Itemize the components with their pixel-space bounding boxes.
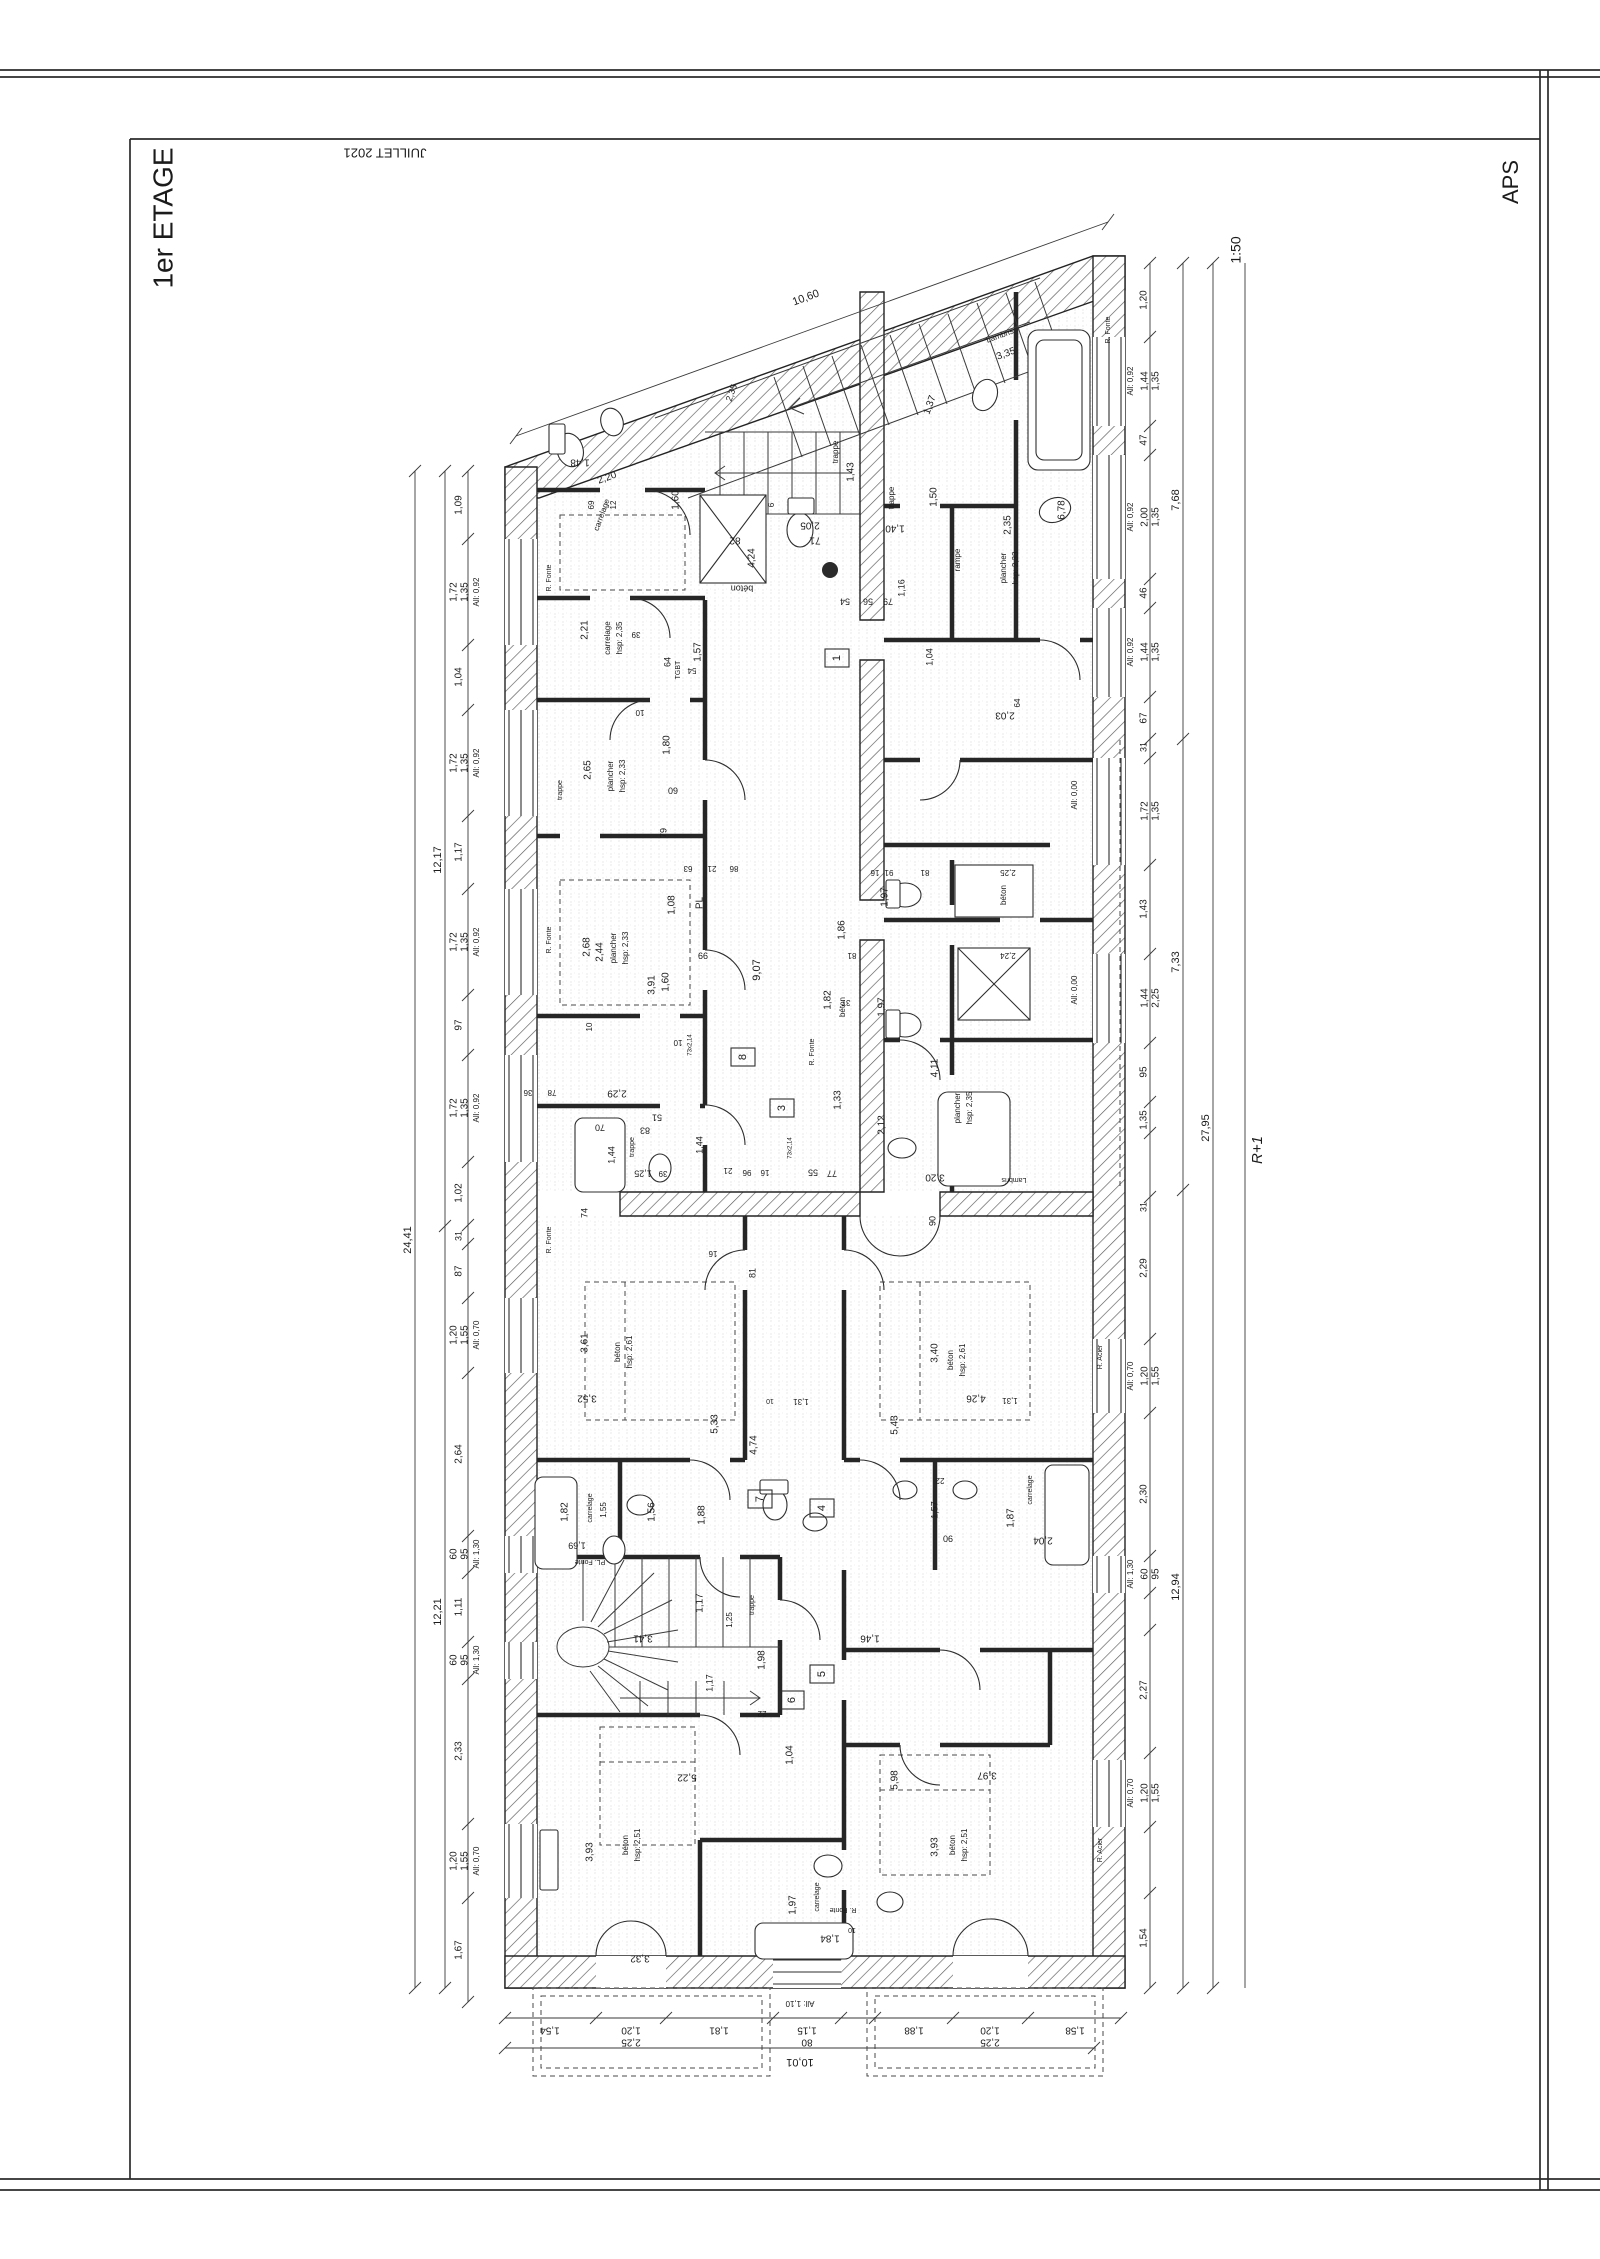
dim-label: 54: [840, 597, 850, 607]
room-label: R. Fonte: [546, 1226, 553, 1253]
dim-label: 1,82: [823, 990, 834, 1010]
dim-label: 2,29: [607, 1087, 627, 1098]
dim-label: 2,04: [1033, 1534, 1053, 1545]
dim-label: 60: [449, 1548, 460, 1560]
dim-label: 10: [673, 1038, 682, 1047]
detail-rect: [533, 1988, 770, 2076]
dim-label: 60: [1140, 1568, 1151, 1580]
room-label: All: 1,30: [1126, 1559, 1135, 1588]
dim-label: 1,44: [1140, 988, 1151, 1008]
room-label: carrelage: [603, 621, 612, 655]
dim-label: 1,80: [662, 735, 673, 755]
date-label: JUILLET 2021: [344, 146, 427, 161]
dim-label: 1,84: [820, 1932, 840, 1943]
dim-label: 31: [1138, 1202, 1148, 1212]
dim-label: 83: [640, 1126, 650, 1136]
room-label: All: 0,92: [1126, 502, 1135, 531]
detail-rect: [540, 1830, 558, 1890]
fixture: [953, 1481, 977, 1499]
dim-label: 51: [652, 1113, 662, 1123]
dim-label: 2,24: [1000, 951, 1016, 960]
room-label: All: 0,92: [472, 577, 481, 606]
room-label: All: 1,30: [472, 1539, 481, 1568]
room-label: All: 0,70: [472, 1320, 481, 1349]
dim-label: 64: [1013, 698, 1022, 707]
room-label: R. Fonte: [546, 926, 553, 953]
room-label: plancher: [999, 552, 1008, 583]
dim-label: 1,02: [454, 1183, 465, 1203]
drawing-title: 1er ETAGE: [147, 147, 178, 288]
room-label: All: 0,92: [472, 1093, 481, 1122]
dim-label: 63: [683, 864, 692, 873]
dim-label: 1,33: [833, 1090, 844, 1110]
dim-label: 1,97: [788, 1895, 799, 1915]
dim-label: 64: [662, 657, 672, 667]
dim-label: 2,35: [1003, 515, 1014, 535]
room-label: trappe: [887, 486, 896, 509]
room-label: R. Acier: [1097, 1837, 1104, 1862]
dim-label: 1,54: [1139, 1928, 1150, 1948]
dim-label: 1,04: [785, 1745, 796, 1765]
dim-label: 2,30: [1139, 1484, 1150, 1504]
room-label: TGBT: [675, 660, 682, 679]
dim-label: 95: [460, 1548, 471, 1560]
dim-label: 1,87: [1006, 1508, 1017, 1528]
dim-label: 80: [801, 2036, 813, 2047]
dim-label: 79: [658, 828, 668, 838]
dim-label: 1,20: [1140, 1783, 1151, 1803]
room-label: All: 0,92: [472, 748, 481, 777]
dim-label: 5,43: [890, 1415, 901, 1435]
dim-label: 5: [816, 1671, 828, 1677]
dim-label: 87: [454, 1265, 465, 1277]
dim-label: 74: [579, 1208, 589, 1218]
dim-label: 2,12: [877, 1115, 888, 1135]
dim-label: 1,25: [634, 1169, 652, 1179]
dim-label: 1,88: [697, 1505, 708, 1525]
dim-label: 2,21: [580, 620, 591, 640]
dim-label: 2,68: [582, 937, 593, 957]
detail-rect: [788, 498, 814, 514]
room-label: R. Acier: [1097, 1344, 1104, 1369]
dim-label: 99: [698, 951, 708, 961]
dim-label: 1,20: [1139, 290, 1150, 310]
dim-label: 1,56: [647, 1502, 658, 1522]
dim-label: 1,09: [454, 495, 465, 515]
dim-label: 1,88: [904, 2024, 924, 2035]
dim-label: 2,25: [1000, 868, 1016, 877]
room-label: PL. Fonte: [575, 1558, 605, 1565]
dim-label: 4,11: [930, 1058, 941, 1077]
dim-label: 1,97: [877, 997, 888, 1017]
dim-label: 31: [453, 1231, 463, 1241]
dim-label: 1,46: [860, 1632, 880, 1643]
dim-label: 1,97: [880, 887, 891, 907]
dim-label: 12,94: [1170, 1573, 1182, 1601]
dim-label: 56: [863, 597, 873, 607]
door-opening: [953, 1956, 1028, 1988]
dim-label: 60: [668, 786, 678, 796]
room-label: carrelage: [587, 1493, 594, 1522]
dim-label: 1,72: [449, 582, 460, 602]
dim-label: 8: [737, 1054, 749, 1060]
room-label: 73x2,14: [788, 1137, 794, 1159]
dim-label: 1,35: [460, 753, 471, 773]
detail-line: [1102, 214, 1114, 230]
dim-label: 1,86: [837, 920, 848, 940]
dim-label: 1,04: [454, 667, 465, 687]
dim-label: 1,31: [1002, 1396, 1018, 1405]
dim-label: 60: [449, 1654, 460, 1666]
dim-label: 12: [609, 500, 618, 509]
dim-label: 9,07: [751, 959, 763, 980]
dim-label: 3,93: [585, 1842, 596, 1862]
room-label: hsp: 2,51: [960, 1828, 969, 1861]
dim-label: 16: [708, 1249, 717, 1258]
dim-label: 1,20: [621, 2024, 641, 2035]
dim-label: 1,72: [1140, 801, 1151, 821]
detail-rect: [955, 865, 1033, 917]
room-label: All: 0,70: [472, 1846, 481, 1875]
room-label: All: 0,00: [1070, 975, 1079, 1004]
dim-label: 81: [847, 951, 856, 960]
detail-rect: [535, 1477, 577, 1569]
room-label: All: 0,00: [1070, 780, 1079, 809]
room-label: All: 0,70: [1126, 1778, 1135, 1807]
dim-label: 1,72: [449, 932, 460, 952]
floor-plan-drawing: 1er ETAGEJUILLET 2021APS1:50R+127,9524,4…: [0, 0, 1600, 2259]
dim-label: 1,72: [449, 753, 460, 773]
dim-label: 1,44: [1140, 642, 1151, 662]
room-label: rampe: [953, 548, 962, 571]
dim-label: 1,57: [693, 642, 704, 662]
room-label: hsp: 2,35: [615, 621, 624, 654]
wall: [505, 467, 537, 1988]
room-label: R. Fonte: [809, 1038, 816, 1065]
dim-label: 10: [766, 1397, 774, 1404]
room-label: R. Fonte: [829, 1906, 856, 1913]
level-label: R+1: [1249, 1136, 1266, 1164]
dim-label: 3,32: [630, 1952, 650, 1963]
dim-label: 1,35: [460, 932, 471, 952]
room-label: béton: [946, 1350, 955, 1370]
dim-label: 4,24: [747, 548, 758, 568]
dim-label: 86: [729, 864, 738, 873]
fixture: [888, 1138, 916, 1158]
dim-label: 7,33: [1170, 951, 1182, 972]
dim-label: 1,69: [568, 1541, 586, 1551]
dim-label: 95: [460, 1654, 471, 1666]
dim-label: 16: [760, 1168, 769, 1177]
dim-label: 39: [658, 1169, 667, 1178]
room-label: carrelage: [814, 1882, 821, 1911]
dim-label: 46: [1139, 587, 1150, 599]
dim-label: 5,22: [677, 1771, 697, 1782]
detail-rect: [549, 424, 565, 454]
dim-label: 1,35: [460, 1098, 471, 1118]
room-label: trappe: [629, 1137, 636, 1157]
dim-label: 3,20: [925, 1171, 945, 1182]
dim-label: 1,55: [1151, 1366, 1162, 1386]
dim-label: 90: [927, 1216, 937, 1226]
dim-label: 10,01: [786, 2056, 814, 2068]
wall: [860, 292, 884, 620]
dim-label: 21: [707, 864, 716, 873]
room-label: trappe: [831, 440, 840, 463]
dim-label: 1,20: [449, 1325, 460, 1345]
dim-label: 1,82: [560, 1502, 571, 1522]
dim-label: 7,68: [1170, 489, 1182, 510]
dim-label: 1,43: [1139, 899, 1150, 919]
room-label: All: 0,92: [1126, 637, 1135, 666]
dim-label: 1,55: [460, 1851, 471, 1871]
dim-label: 1,35: [1151, 801, 1162, 821]
wall: [860, 940, 884, 1192]
dim-label: 1,57: [929, 1501, 939, 1519]
dim-label: 2,65: [583, 760, 594, 780]
room-label: 73x2,14: [688, 1034, 694, 1056]
dim-label: 1,55: [599, 1502, 608, 1518]
dim-label: 3,52: [577, 1392, 597, 1403]
dim-label: 1,43: [846, 462, 857, 482]
wall: [940, 1192, 1093, 1216]
dim-label: 2,29: [1139, 1258, 1150, 1278]
dim-label: 3,91: [647, 975, 658, 995]
dim-label: 3,93: [930, 1837, 941, 1857]
room-label: hsp: 2,61: [625, 1335, 634, 1368]
dim-label: 91: [884, 868, 893, 877]
dim-label: 1,35: [1139, 1110, 1150, 1130]
scale-label: 1:50: [1228, 236, 1244, 263]
room-label: hsp: 2,35: [965, 1091, 974, 1124]
dim-label: 36: [523, 1088, 532, 1097]
dim-label: 21: [723, 1166, 732, 1175]
detail-rect: [1036, 340, 1082, 460]
dim-label: 1,55: [1151, 1783, 1162, 1803]
dim-label: 1,58: [1065, 2024, 1085, 2035]
room-label: béton: [999, 885, 1008, 905]
detail-rect: [886, 1010, 900, 1038]
dim-label: 4: [816, 1505, 828, 1511]
dim-label: 54: [687, 666, 696, 675]
room-label: hsp: 2,33: [618, 759, 627, 792]
dim-label: 2,25: [621, 2036, 641, 2047]
room-label: béton: [731, 584, 754, 594]
dim-label: 77: [827, 1169, 837, 1179]
dim-label: 10: [848, 1926, 856, 1933]
dim-label: 1,50: [929, 487, 940, 507]
fixture: [803, 1513, 827, 1531]
dim-label: 24,41: [402, 1226, 414, 1254]
dim-label: 1,20: [1140, 1366, 1151, 1386]
room-label: hsp: 2,33: [1011, 551, 1020, 584]
dim-label: 1,55: [460, 1325, 471, 1345]
room-label: hsp: 2,51: [633, 1828, 642, 1861]
dim-label: 1,35: [1151, 371, 1162, 391]
dim-label: 3: [776, 1105, 788, 1111]
room-label: plancher: [953, 1092, 962, 1123]
dim-label: 1,54: [540, 2024, 560, 2035]
dim-label: 1,35: [1151, 642, 1162, 662]
room-label: All: 1,10: [785, 1999, 814, 2008]
room-label: hsp: 2,61: [958, 1343, 967, 1376]
wall: [620, 1192, 860, 1216]
dim-label: 22: [935, 1476, 944, 1485]
dim-label: 2,44: [595, 942, 606, 962]
dim-label: 1,67: [454, 1940, 465, 1960]
room-label: béton: [948, 1835, 957, 1855]
dim-label: 70: [595, 1123, 605, 1133]
dim-label: 82: [729, 534, 741, 545]
fixture: [877, 1892, 903, 1912]
dim-label: 2,25: [980, 2036, 1000, 2047]
dim-label: 1,72: [449, 1098, 460, 1118]
dim-label: 1,11: [454, 1597, 465, 1616]
dim-label: 3,40: [930, 1343, 941, 1363]
dim-label: 10: [585, 1022, 594, 1031]
room-label: All: 0,92: [1126, 366, 1135, 395]
dim-label: 79: [883, 597, 893, 607]
dim-label: 31: [1138, 742, 1148, 752]
dim-label: 47: [1139, 434, 1150, 446]
room-label: Lambris: [1001, 1176, 1026, 1183]
room-label: PL: [695, 896, 706, 909]
fixture: [603, 1536, 625, 1564]
dim-label: 81: [920, 868, 929, 877]
wall: [860, 660, 884, 900]
dim-label: 10: [635, 708, 644, 717]
dim-label: 55: [808, 1168, 818, 1178]
detail-line: [510, 428, 522, 444]
dim-label: 5,98: [890, 1770, 901, 1790]
room-label: béton: [621, 1835, 630, 1855]
dim-label: 10,60: [791, 288, 821, 309]
dim-label: 1,25: [725, 1612, 734, 1628]
room-label: trappe: [749, 1595, 756, 1615]
dim-label: 1: [831, 655, 843, 661]
dim-label: 3,41: [633, 1632, 653, 1643]
dim-label: 39: [631, 630, 640, 639]
dim-label: 1,48: [570, 456, 590, 467]
dim-label: 5,33: [710, 1414, 721, 1434]
dim-label: 1,40: [885, 522, 905, 533]
dim-label: 6: [767, 502, 776, 507]
dim-label: 2,64: [454, 1444, 465, 1464]
dim-label: 2,03: [995, 709, 1015, 720]
dim-label: 1,17: [695, 1593, 706, 1613]
dim-label: 1,08: [667, 895, 678, 915]
dim-label: 1,98: [757, 1650, 768, 1670]
dim-label: 4,26: [966, 1392, 986, 1403]
dim-label: 16: [870, 868, 879, 877]
dim-label: 2,33: [454, 1741, 465, 1761]
dim-label: 78: [547, 1088, 556, 1097]
dim-label: 96: [742, 1168, 751, 1177]
dim-label: 1,81: [709, 2024, 729, 2035]
room-label: All: 1,30: [472, 1645, 481, 1674]
dim-label: 69: [587, 500, 596, 509]
dim-label: 1,17: [454, 842, 465, 862]
dim-label: 12,17: [432, 846, 444, 874]
room-label: béton: [613, 1342, 622, 1362]
room-label: carrelage: [1027, 1475, 1034, 1504]
dim-label: 6: [786, 1697, 798, 1703]
detail-rect: [1045, 1465, 1089, 1565]
room-label: R. Fonte: [546, 564, 553, 591]
dim-label: 6,78: [1057, 500, 1068, 520]
dim-label: 81: [747, 1268, 757, 1278]
dim-label: 1,17: [704, 1674, 714, 1692]
dim-label: 71: [809, 534, 821, 545]
dim-label: 12,21: [432, 1598, 444, 1626]
dim-label: 7: [754, 1496, 766, 1502]
dim-label: 1,15: [797, 2024, 817, 2035]
dim-label: 90: [943, 1534, 953, 1544]
room-label: trappe: [557, 780, 564, 800]
dim-label: 4,74: [749, 1435, 760, 1455]
dim-label: 1,60: [671, 490, 682, 510]
column-post: [822, 562, 838, 578]
dim-label: 3,97: [977, 1769, 997, 1780]
room-label: béton: [838, 997, 847, 1017]
dim-label: 2,00: [1140, 507, 1151, 527]
dim-label: 1,16: [896, 579, 906, 597]
stage-label: APS: [1498, 160, 1523, 204]
dim-label: 2,05: [800, 519, 820, 530]
dim-label: 3,61: [580, 1333, 591, 1353]
dim-label: 1,60: [661, 972, 672, 992]
dim-label: 22: [757, 1709, 766, 1718]
dim-label: 95: [1151, 1568, 1162, 1580]
dim-label: 1,20: [980, 2024, 1000, 2035]
fixture: [814, 1855, 842, 1877]
dim-label: 97: [454, 1019, 465, 1031]
room-label: hsp: 2,33: [621, 931, 630, 964]
scanned-sheet: 1er ETAGE 1:50 1er ETAGEJUILLET 2021APS1…: [0, 0, 1600, 2259]
dim-label: 27,95: [1200, 1114, 1212, 1142]
room-label: plancher: [606, 760, 615, 791]
dim-label: 1,35: [460, 582, 471, 602]
room-label: All: 0,70: [1126, 1361, 1135, 1390]
dim-label: 1,44: [1140, 371, 1151, 391]
room-label: All: 0,92: [472, 927, 481, 956]
dim-label: 1,31: [793, 1397, 809, 1406]
dim-label: 1,44: [606, 1146, 616, 1164]
room-label: R. Fonte: [1105, 316, 1112, 343]
dim-label: 67: [1139, 712, 1150, 724]
dim-label: 1,44: [694, 1136, 704, 1154]
dim-label: 1,20: [449, 1851, 460, 1871]
dim-label: 2,27: [1139, 1680, 1150, 1700]
dim-label: 95: [1139, 1066, 1150, 1078]
dim-label: 1,35: [1151, 507, 1162, 527]
dim-label: 2,25: [1151, 988, 1162, 1008]
detail-rect: [760, 1480, 788, 1494]
dim-label: 1,04: [924, 648, 934, 666]
room-label: plancher: [609, 932, 618, 963]
